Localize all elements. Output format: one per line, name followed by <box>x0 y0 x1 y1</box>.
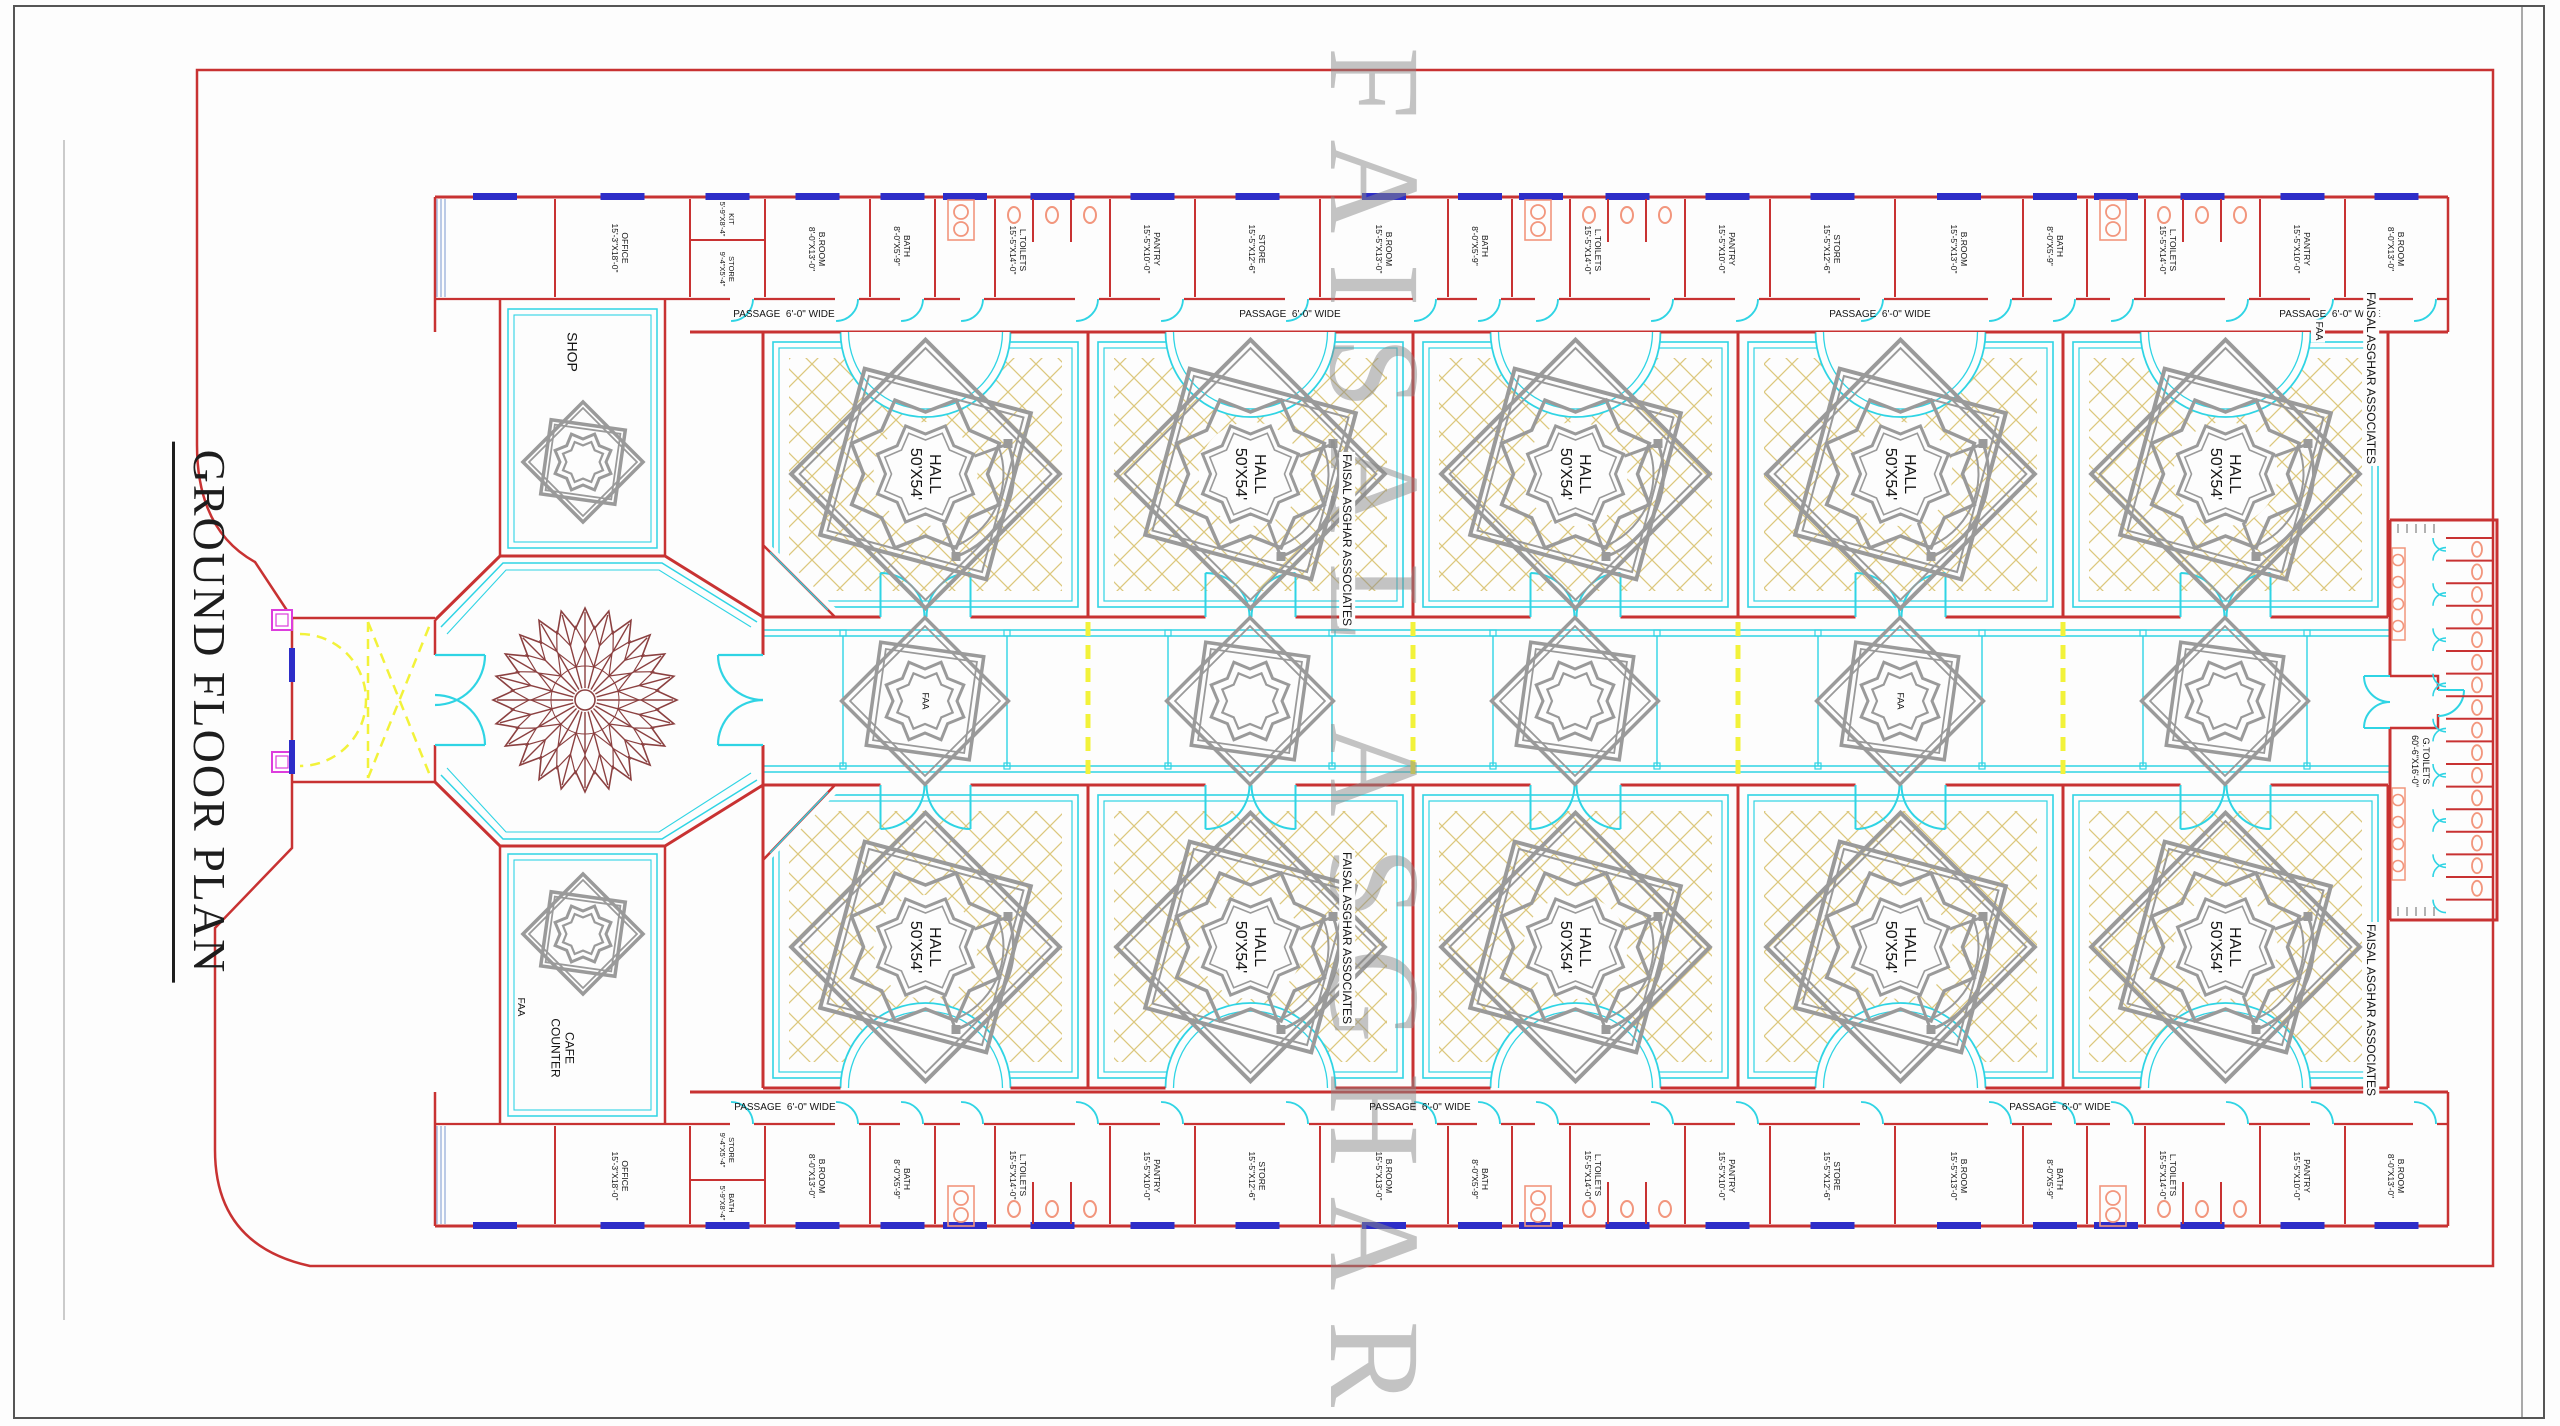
toilets-label: G.TOILETS 60'-6"X16'-0" <box>2409 735 2431 787</box>
faa-ornament-label: FAA <box>920 692 931 709</box>
room-label: B.ROOM 15'-5"X13'-0" <box>1374 1152 1394 1201</box>
room-label: PANTRY 15'-5"X10'-0" <box>1142 225 1162 274</box>
room-label: B.ROOM 15'-5"X13'-0" <box>1949 225 1969 274</box>
hall-label: HALL 50'X54' <box>1881 448 1919 500</box>
room-label: KIT 5'-9"X8'-4" <box>718 202 736 237</box>
room-label: B.ROOM 15'-5"X13'-0" <box>1374 225 1394 274</box>
drawing-title: GROUND FLOOR PLAN <box>172 442 236 983</box>
room-label: STORE 9'-4"X5'-4" <box>718 252 736 287</box>
room-label: B.ROOM 8'-0"X13'-0" <box>807 1154 827 1198</box>
room-label: PANTRY 15'-5"X10'-0" <box>1142 1152 1162 1201</box>
room-label: STORE 15'-5"X12'-6" <box>1822 225 1842 274</box>
hall-label: HALL 50'X54' <box>2206 921 2244 973</box>
cafe-label: CAFE COUNTER <box>548 1018 577 1077</box>
room-label: B.ROOM 8'-0"X13'-0" <box>807 227 827 271</box>
room-label: BATH 8'-0"X5'-9" <box>892 1159 912 1199</box>
shop-label: SHOP <box>564 332 581 372</box>
room-label: L.TOILETS 15'-5"X14'-0" <box>1008 1151 1028 1200</box>
hall-label: HALL 50'X54' <box>1231 921 1269 973</box>
passage-label: PASSAGE 6'-0" WIDE <box>734 1102 835 1114</box>
hall-label: HALL 50'X54' <box>1556 448 1594 500</box>
room-label: STORE 9'-4"X5'-4" <box>718 1133 736 1168</box>
room-label: PANTRY 15'-5"X10'-0" <box>1717 1152 1737 1201</box>
room-label: PANTRY 15'-5"X10'-0" <box>1717 225 1737 274</box>
floor-plan-sheet: FAISAL ASGHAR PASSAGE 6'-0" WIDEPASSAGE … <box>0 0 2560 1426</box>
firm-label: FAISAL ASGHAR ASSOCIATES <box>2363 922 2379 1098</box>
passage-label: PASSAGE 6'-0" WIDE <box>733 309 834 321</box>
room-label: STORE 15'-5"X12'-6" <box>1247 1152 1267 1201</box>
faa-label: FAA <box>2311 320 2325 343</box>
room-label: BATH 8'-0"X5'-9" <box>2045 1159 2065 1199</box>
room-label: OFFICE 15'-3"X18'-0" <box>610 224 630 273</box>
room-label: B.ROOM 8'-0"X13'-0" <box>2386 227 2406 271</box>
room-label: BATH 8'-0"X5'-9" <box>2045 226 2065 266</box>
passage-label: PASSAGE 6'-0" WIDE <box>1239 309 1340 321</box>
room-label: B.ROOM 15'-5"X13'-0" <box>1949 1152 1969 1201</box>
room-label: L.TOILETS 15'-5"X14'-0" <box>1583 226 1603 275</box>
room-label: BATH 8'-0"X5'-9" <box>1470 226 1490 266</box>
room-label: PANTRY 15'-5"X10'-0" <box>2292 225 2312 274</box>
faa-ornament-label: FAA <box>1895 692 1906 709</box>
labels-layer: PASSAGE 6'-0" WIDEPASSAGE 6'-0" WIDEPASS… <box>0 0 2560 1426</box>
passage-label: PASSAGE 6'-0" WIDE <box>2009 1102 2110 1114</box>
room-label: BATH 8'-0"X5'-9" <box>1470 1159 1490 1199</box>
hall-label: HALL 50'X54' <box>906 921 944 973</box>
hall-label: HALL 50'X54' <box>2206 448 2244 500</box>
faa-label: FAA <box>514 998 526 1017</box>
hall-label: HALL 50'X54' <box>1231 448 1269 500</box>
firm-label: FAISAL ASGHAR ASSOCIATES <box>2363 290 2379 466</box>
room-label: STORE 15'-5"X12'-6" <box>1822 1152 1842 1201</box>
hall-label: HALL 50'X54' <box>906 448 944 500</box>
room-label: OFFICE 15'-3"X18'-0" <box>610 1152 630 1201</box>
room-label: L.TOILETS 15'-5"X14'-0" <box>1583 1151 1603 1200</box>
hall-label: HALL 50'X54' <box>1556 921 1594 973</box>
room-label: BATH 8'-0"X5'-9" <box>892 226 912 266</box>
firm-label: FAISAL ASGHAR ASSOCIATES <box>1339 850 1355 1026</box>
hall-label: HALL 50'X54' <box>1881 921 1919 973</box>
room-label: PANTRY 15'-5"X10'-0" <box>2292 1152 2312 1201</box>
room-label: B.ROOM 8'-0"X13'-0" <box>2386 1154 2406 1198</box>
room-label: STORE 15'-5"X12'-6" <box>1247 225 1267 274</box>
room-label: L.TOILETS 15'-5"X14'-0" <box>2158 226 2178 275</box>
passage-label: PASSAGE 6'-0" WIDE <box>1829 309 1930 321</box>
firm-label: FAISAL ASGHAR ASSOCIATES <box>1339 452 1355 628</box>
room-label: BATH 5'-9"X8'-4" <box>718 1186 736 1221</box>
passage-label: PASSAGE 6'-0" WIDE <box>1369 1102 1470 1114</box>
room-label: L.TOILETS 15'-5"X14'-0" <box>2158 1151 2178 1200</box>
room-label: L.TOILETS 15'-5"X14'-0" <box>1008 226 1028 275</box>
